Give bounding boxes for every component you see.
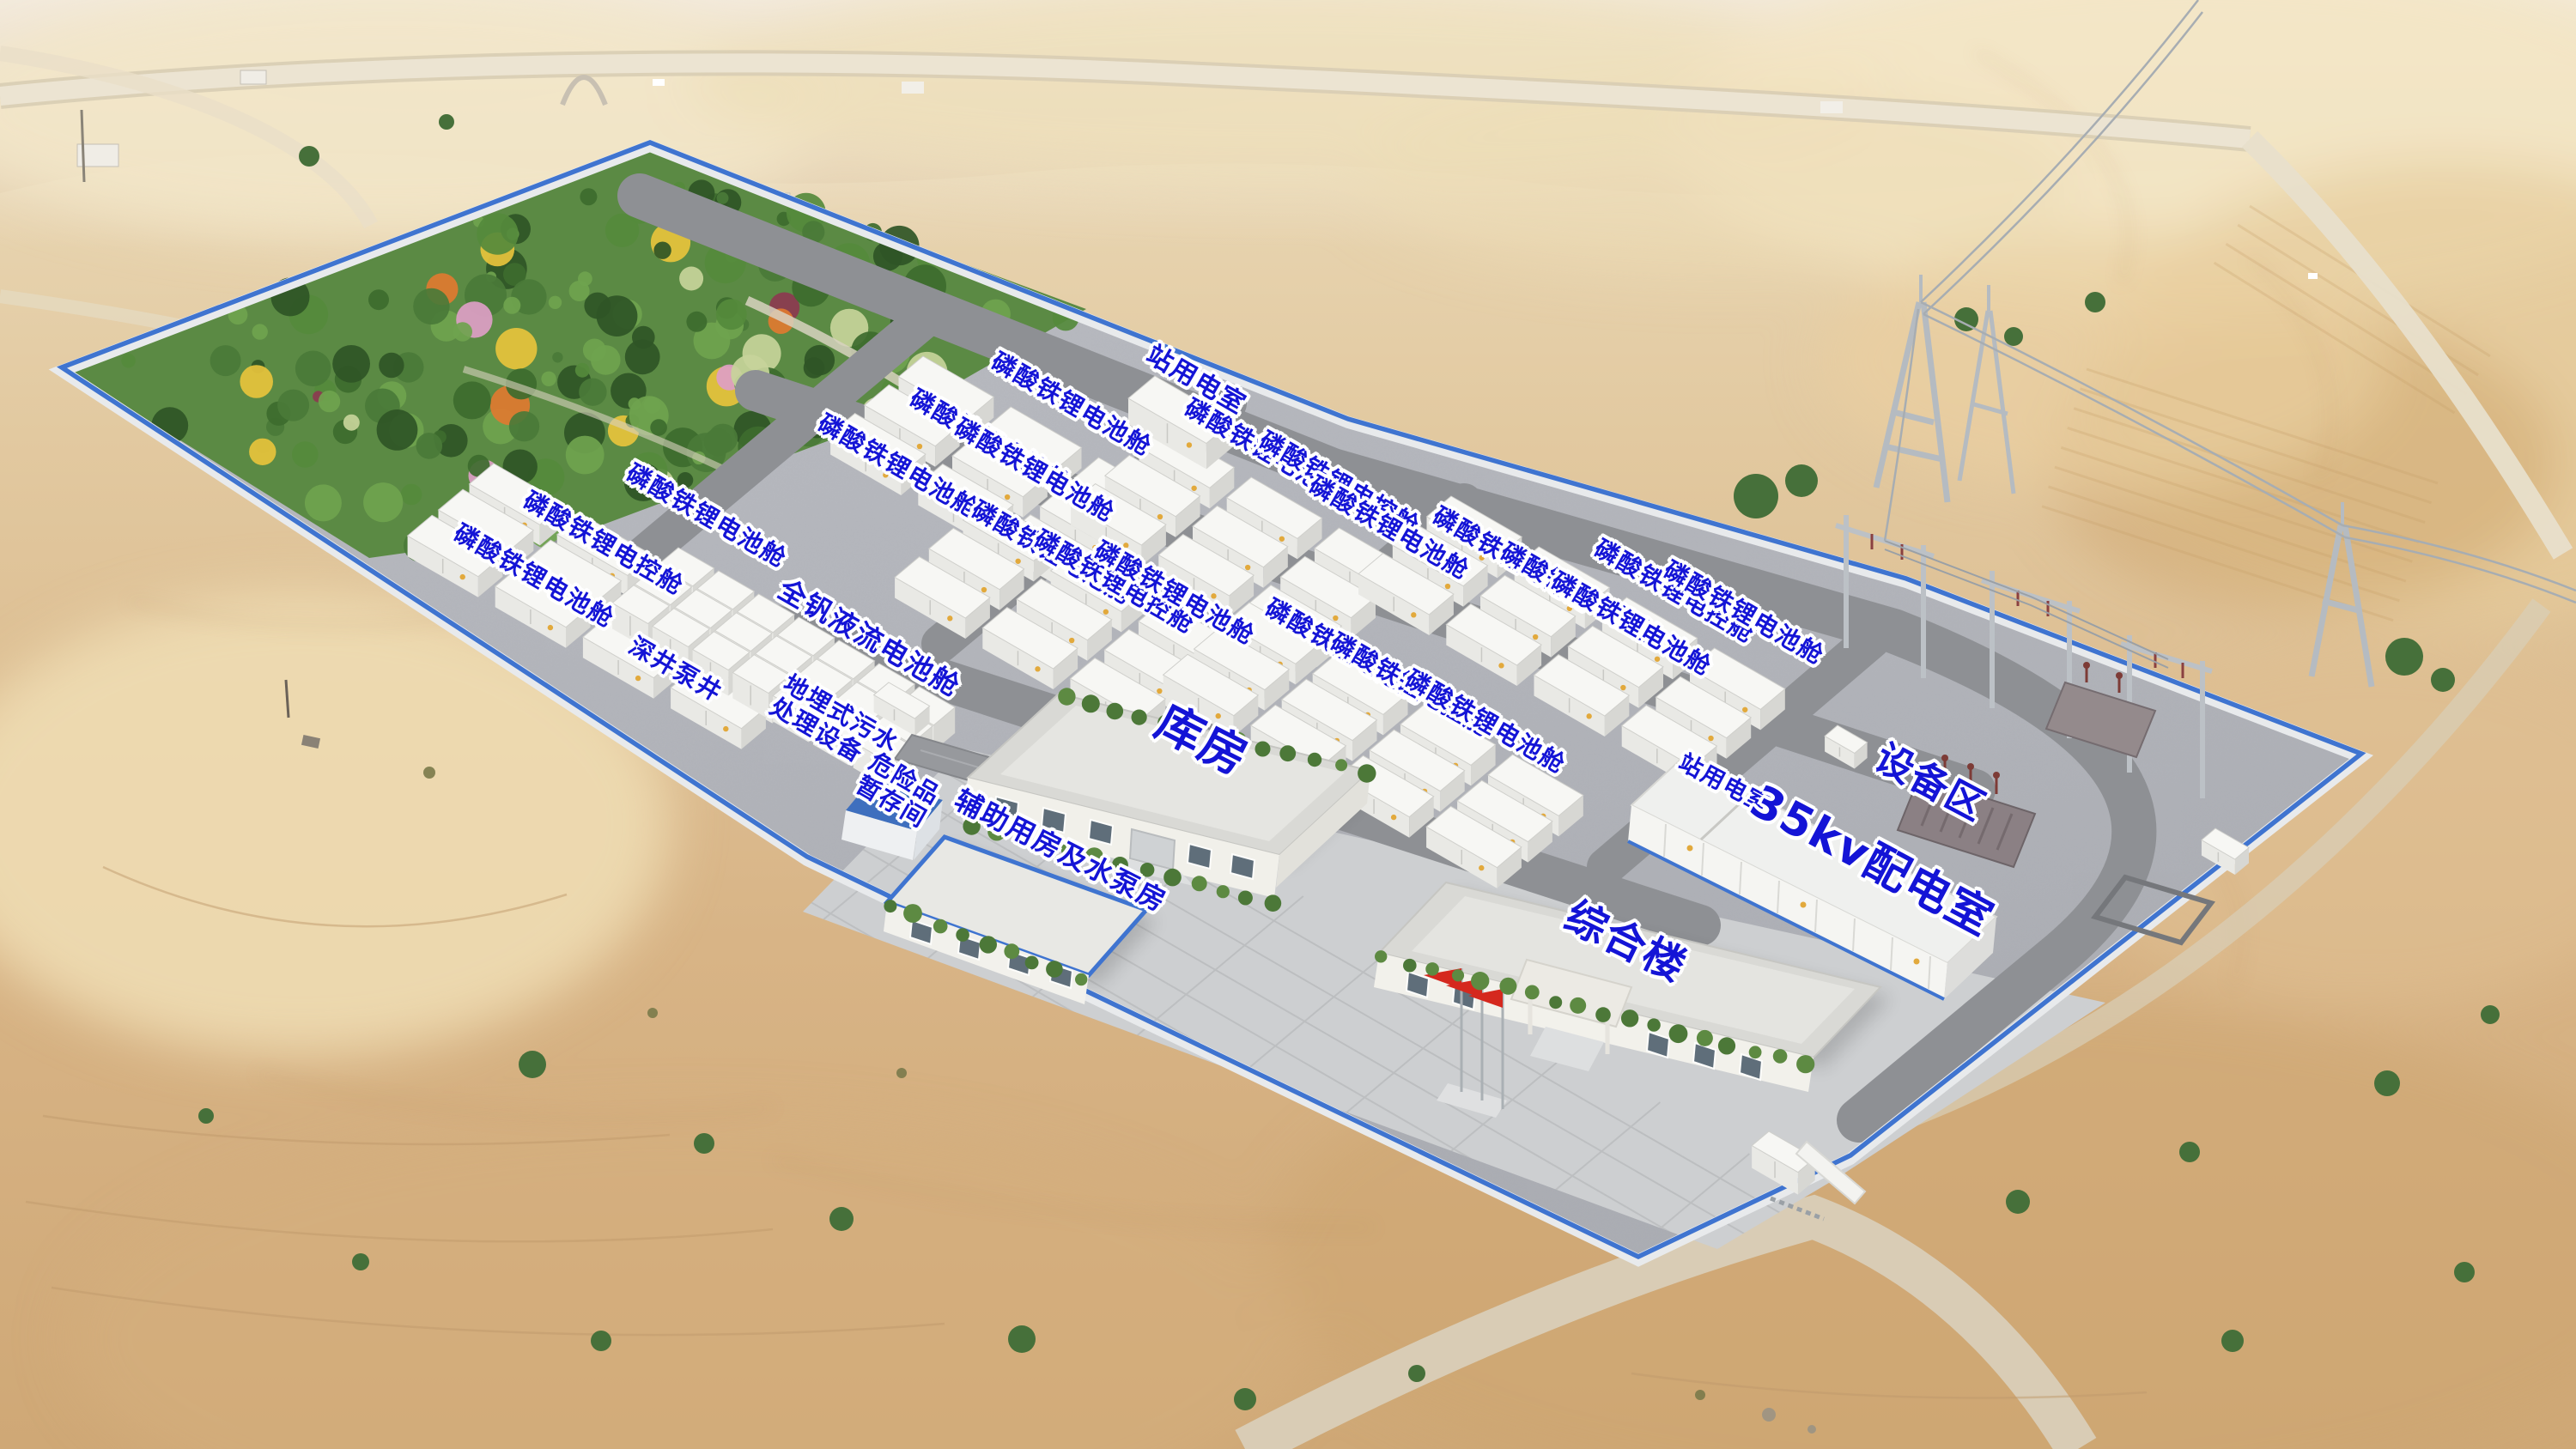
aerial-rendering: 站用电室磷酸铁锂电池舱磷酸铁锂电控舱磷酸铁锂电池舱磷酸铁锂电池舱磷酸铁锂电池舱磷… xyxy=(0,0,2576,1449)
scene-svg xyxy=(0,0,2576,1449)
